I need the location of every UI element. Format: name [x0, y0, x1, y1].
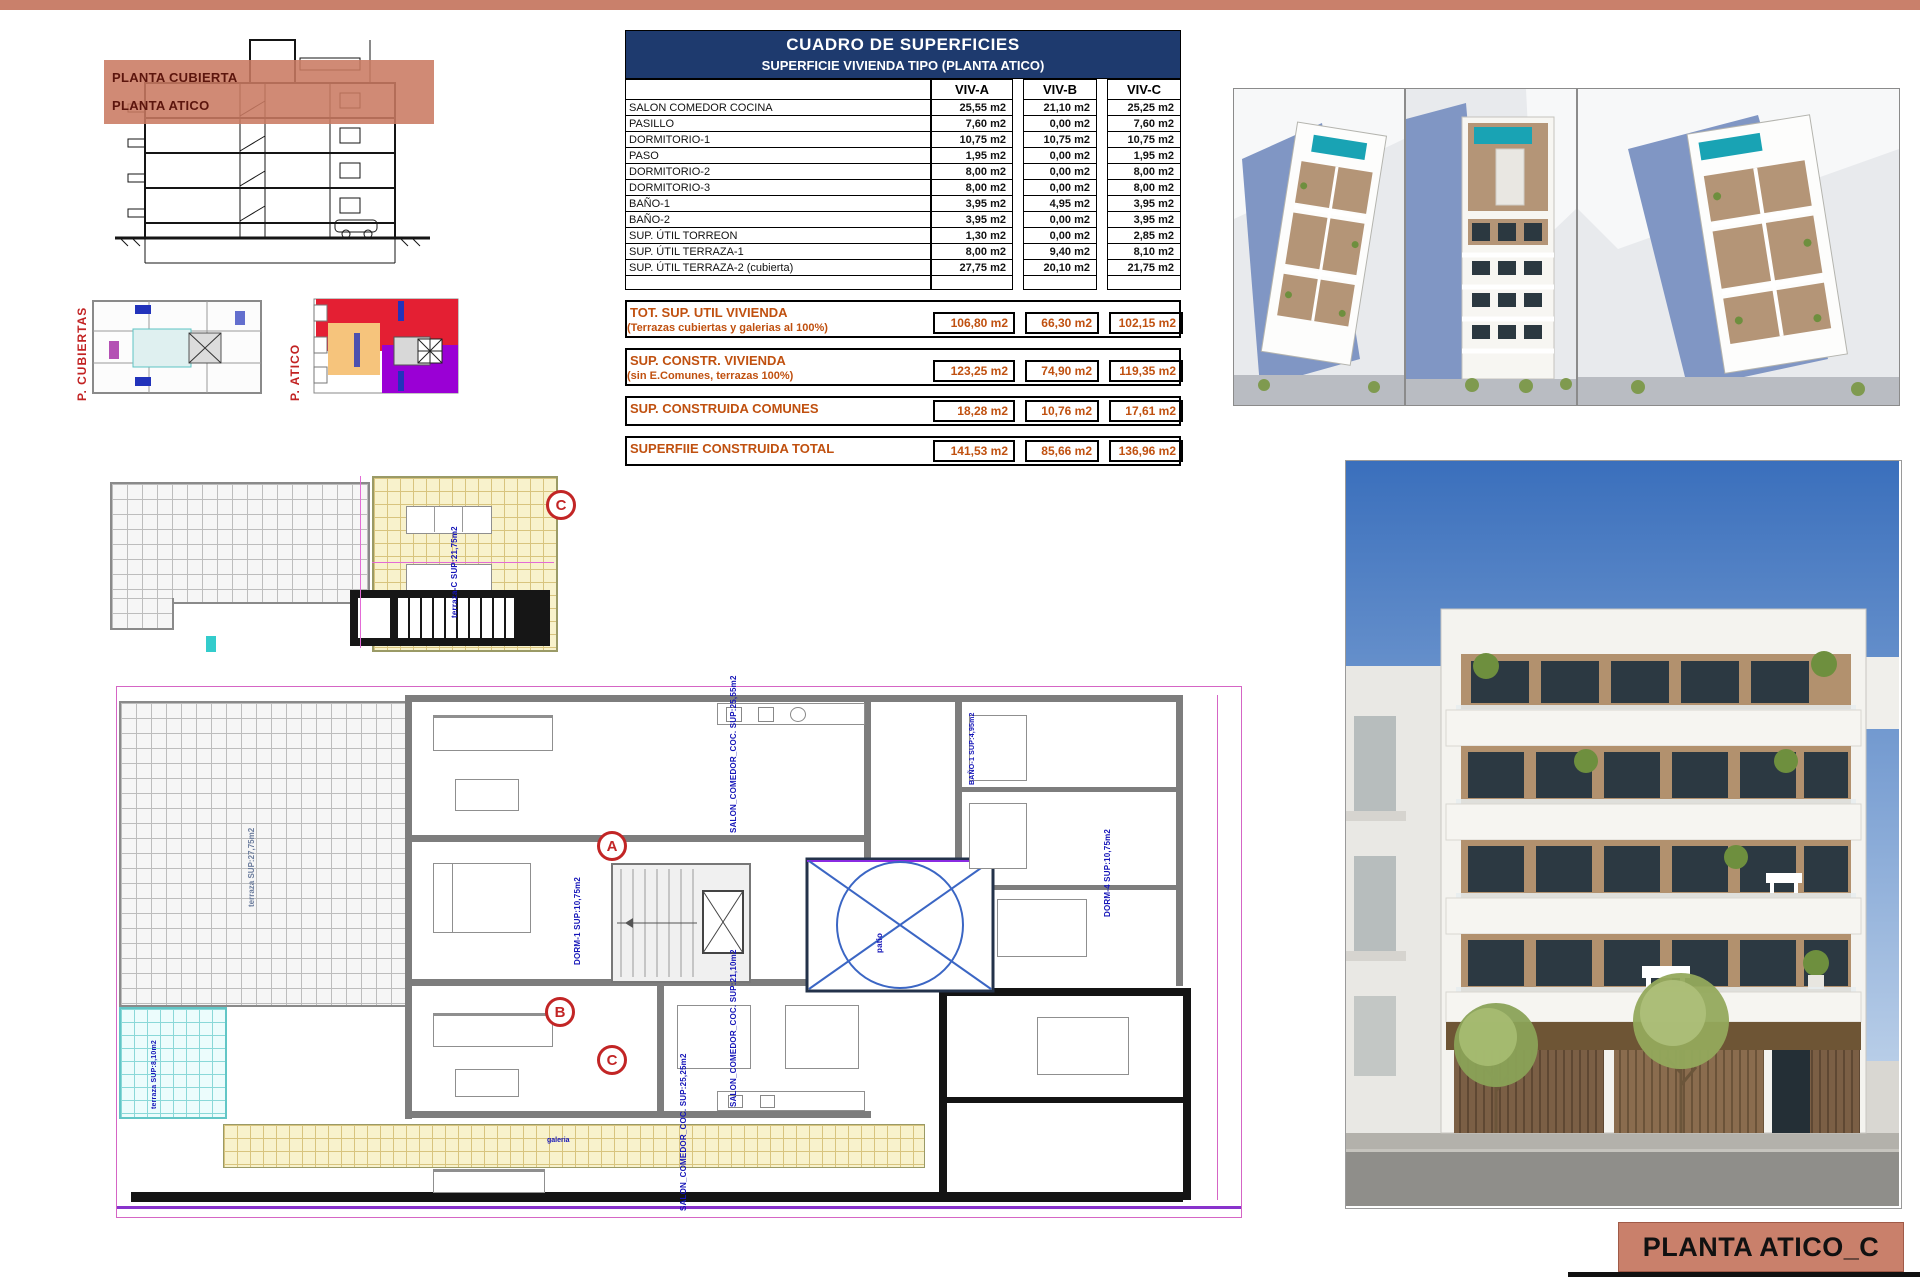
cell-viv-c: 1,95 m2: [1107, 148, 1181, 164]
col-gap: [1013, 244, 1023, 260]
table-spacer: [625, 426, 1181, 436]
col-gap: [1097, 79, 1107, 100]
furniture: [433, 863, 531, 933]
aerial-render-2: [1405, 88, 1577, 406]
col-gap: [1013, 132, 1023, 148]
planta-atico-label: PLANTA ATICO: [112, 98, 209, 113]
kitchen-stove: [758, 707, 774, 722]
furniture: [434, 506, 435, 532]
summary-viv-a: 18,28 m2: [933, 400, 1015, 422]
summary-note: (sin E.Comunes, terrazas 100%): [627, 370, 933, 382]
summary-label-cell: SUP. CONSTR. VIVIENDA (sin E.Comunes, te…: [627, 350, 933, 384]
plan-terrace-cyan: [119, 1007, 227, 1119]
summary-viv-b: 74,90 m2: [1025, 360, 1099, 382]
col-gap: [1097, 132, 1107, 148]
kitchen-basin: [790, 707, 806, 722]
furniture: [969, 715, 1027, 781]
facade-render-drawing: [1346, 461, 1899, 1206]
key-plan-cubiertas-label: P. CUBIERTAS: [75, 293, 89, 401]
table-row: SUP. ÚTIL TORREON 1,30 m2 0,00 m2 2,85 m…: [625, 228, 1181, 244]
col-gap: [1097, 260, 1107, 276]
cell-viv-b: [1023, 276, 1097, 290]
summary-viv-c: 119,35 m2: [1109, 360, 1183, 382]
key-plan-atico: P. ATICO: [288, 293, 478, 401]
building-section-panel: PLANTA CUBIERTA PLANTA ATICO: [100, 28, 445, 293]
furniture: [455, 1069, 519, 1097]
summary-viv-c: 102,15 m2: [1109, 312, 1183, 334]
key-plan-cubiertas-drawing: [89, 293, 267, 401]
col-gap: [1097, 244, 1107, 260]
table-title: CUADRO DE SUPERFICIES: [626, 35, 1180, 55]
col-gap: [1013, 212, 1023, 228]
room-label-bano1: BAÑO-1 SUP:4,95m2: [969, 705, 976, 785]
top-accent-strip: [0, 0, 1920, 10]
sheet-title-bar: PLANTA ATICO_C: [1618, 1222, 1904, 1272]
col-gap: [1013, 180, 1023, 196]
room-label-dorm4: DORM-4 SUP:10,75m2: [1103, 797, 1112, 917]
summary-note: (Terrazas cubiertas y galerias al 100%): [627, 322, 933, 334]
terrace-label-gray: terraza SUP:27,75m2: [247, 787, 256, 907]
black-wall: [131, 1192, 1183, 1202]
table-row: DORMITORIO-2 8,00 m2 0,00 m2 8,00 m2: [625, 164, 1181, 180]
row-label: BAÑO-1: [625, 196, 931, 212]
col-gap: [1099, 302, 1109, 336]
col-gap: [1015, 302, 1025, 336]
table-row: SUP. ÚTIL TERRAZA-2 (cubierta) 27,75 m2 …: [625, 260, 1181, 276]
room-label-salon-a: SALON_COMEDOR_COC. SUP:25,55m2: [729, 727, 738, 833]
room-label-salon-b: SALON_COMEDOR_COC. SUP:21,10m2: [729, 987, 738, 1107]
surface-table: CUADRO DE SUPERFICIES SUPERFICIE VIVIEND…: [625, 30, 1181, 466]
cell-viv-c: [1107, 276, 1181, 290]
cell-viv-a: 3,95 m2: [931, 196, 1013, 212]
table-spacer: [625, 290, 1181, 300]
row-label: PASO: [625, 148, 931, 164]
cell-viv-a: 1,95 m2: [931, 148, 1013, 164]
table-row: BAÑO-2 3,95 m2 0,00 m2 3,95 m2: [625, 212, 1181, 228]
unit-marker-c: C: [597, 1045, 627, 1075]
plan-galeria-strip: [223, 1124, 925, 1168]
kitchen-counter: [717, 703, 865, 725]
furniture: [785, 1005, 859, 1069]
cell-viv-c: 8,00 m2: [1107, 180, 1181, 196]
row-label: PASILLO: [625, 116, 931, 132]
col-gap: [1013, 116, 1023, 132]
room-label-galeria: galeria: [547, 1137, 570, 1144]
summary-viv-c: 17,61 m2: [1109, 400, 1183, 422]
table-row: BAÑO-1 3,95 m2 4,95 m2 3,95 m2: [625, 196, 1181, 212]
cell-viv-a: [931, 276, 1013, 290]
col-gap: [1097, 180, 1107, 196]
black-wall: [939, 988, 947, 1200]
furniture: [433, 715, 553, 751]
col-header-viv-b: VIV-B: [1023, 79, 1097, 100]
cell-viv-c: 8,10 m2: [1107, 244, 1181, 260]
roof-gray-terrace: [110, 482, 370, 604]
facade-render: [1345, 460, 1902, 1209]
kitchen-counter: [717, 1091, 865, 1111]
furniture: [1037, 1017, 1129, 1075]
aerial-renders-panel: [1233, 88, 1900, 406]
furniture: [433, 1013, 553, 1047]
col-gap: [1013, 100, 1023, 116]
roof-terrace-plan: terraza-C SUP:21,75m2 C: [110, 468, 580, 660]
roof-unit-marker-c: C: [546, 490, 576, 520]
cell-viv-b: 0,00 m2: [1023, 116, 1097, 132]
cell-viv-a: 25,55 m2: [931, 100, 1013, 116]
cell-viv-a: 8,00 m2: [931, 180, 1013, 196]
col-gap: [1097, 164, 1107, 180]
roof-stair-landing: [358, 598, 390, 638]
table-spacer: [625, 338, 1181, 348]
planta-cubierta-label: PLANTA CUBIERTA: [112, 70, 238, 85]
cell-viv-c: 2,85 m2: [1107, 228, 1181, 244]
dimension-line: [360, 476, 361, 648]
col-gap: [1097, 196, 1107, 212]
room-label-dorm1: DORM-1 SUP:10,75m2: [573, 855, 582, 965]
cyan-tick: [206, 636, 216, 652]
col-gap: [1097, 100, 1107, 116]
terrace-label-cyan: terraza SUP:8,10m2: [151, 1019, 158, 1109]
bed-pillow: [434, 864, 453, 932]
key-plan-atico-label: P. ATICO: [288, 293, 302, 401]
row-label: SUP. ÚTIL TORREON: [625, 228, 931, 244]
row-label: [625, 276, 931, 290]
key-plan-atico-drawing: [302, 293, 470, 401]
planta-highlight-band: PLANTA CUBIERTA PLANTA ATICO: [104, 60, 434, 124]
summary-label: TOT. SUP. UTIL VIVIENDA: [627, 302, 933, 322]
cell-viv-a: 8,00 m2: [931, 244, 1013, 260]
summary-viv-a: 106,80 m2: [933, 312, 1015, 334]
cell-viv-a: 27,75 m2: [931, 260, 1013, 276]
wall: [962, 787, 1176, 792]
row-label: DORMITORIO-1: [625, 132, 931, 148]
col-header-viv-c: VIV-C: [1107, 79, 1181, 100]
aerial-render-3: [1577, 88, 1900, 406]
patio-drawing: [805, 857, 995, 993]
col-gap: [1013, 228, 1023, 244]
row-label: SALON COMEDOR COCINA: [625, 100, 931, 116]
row-label: DORMITORIO-3: [625, 180, 931, 196]
table-spacer: [625, 386, 1181, 396]
col-gap: [1099, 350, 1109, 384]
summary-row-total-util: TOT. SUP. UTIL VIVIENDA (Terrazas cubier…: [625, 300, 1181, 338]
table-row: DORMITORIO-1 10,75 m2 10,75 m2 10,75 m2: [625, 132, 1181, 148]
cell-viv-a: 3,95 m2: [931, 212, 1013, 228]
cell-viv-a: 7,60 m2: [931, 116, 1013, 132]
col-gap: [1013, 260, 1023, 276]
unit-marker-a: A: [597, 831, 627, 861]
pink-boundary-line: [1217, 695, 1218, 1200]
summary-label: SUPERFIIE CONSTRUIDA TOTAL: [627, 438, 933, 464]
furniture: [406, 506, 492, 534]
summary-row-constr-vivienda: SUP. CONSTR. VIVIENDA (sin E.Comunes, te…: [625, 348, 1181, 386]
row-label: DORMITORIO-2: [625, 164, 931, 180]
col-gap: [1013, 276, 1023, 290]
summary-viv-b: 10,76 m2: [1025, 400, 1099, 422]
summary-viv-a: 123,25 m2: [933, 360, 1015, 382]
room-label-salon-c: SALON_COMEDOR_COC. SUP:25,25m2: [679, 1111, 688, 1211]
summary-row-comunes: SUP. CONSTRUIDA COMUNES 18,28 m2 10,76 m…: [625, 396, 1181, 426]
roof-gray-terrace-step: [110, 598, 174, 630]
cell-viv-b: 0,00 m2: [1023, 180, 1097, 196]
wall: [405, 835, 871, 842]
aerial-render-1: [1233, 88, 1405, 406]
plan-terrace-gray: [119, 701, 411, 1007]
plan-sheet: PLANTA CUBIERTA PLANTA ATICO P. CUBIERTA…: [0, 0, 1920, 1280]
table-column-header-row: VIV-A VIV-B VIV-C: [625, 79, 1181, 100]
cell-viv-b: 21,10 m2: [1023, 100, 1097, 116]
cell-viv-c: 8,00 m2: [1107, 164, 1181, 180]
summary-viv-c: 136,96 m2: [1109, 440, 1183, 462]
summary-viv-b: 66,30 m2: [1025, 312, 1099, 334]
row-label: BAÑO-2: [625, 212, 931, 228]
furniture: [462, 506, 463, 532]
table-row: SALON COMEDOR COCINA 25,55 m2 21,10 m2 2…: [625, 100, 1181, 116]
black-wall: [939, 1097, 1191, 1103]
cell-viv-b: 0,00 m2: [1023, 148, 1097, 164]
table-row: PASILLO 7,60 m2 0,00 m2 7,60 m2: [625, 116, 1181, 132]
wall: [1176, 695, 1183, 986]
furniture: [997, 899, 1087, 957]
col-gap: [1015, 398, 1025, 424]
cell-viv-b: 0,00 m2: [1023, 228, 1097, 244]
summary-viv-b: 85,66 m2: [1025, 440, 1099, 462]
black-wall: [1183, 988, 1191, 1200]
key-plan-cubiertas: P. CUBIERTAS: [75, 293, 275, 401]
cell-viv-b: 0,00 m2: [1023, 212, 1097, 228]
summary-row-construida-total: SUPERFIIE CONSTRUIDA TOTAL 141,53 m2 85,…: [625, 436, 1181, 466]
row-label: SUP. ÚTIL TERRAZA-1: [625, 244, 931, 260]
table-empty-row: [625, 276, 1181, 290]
col-header-blank: [625, 79, 931, 100]
cell-viv-b: 0,00 m2: [1023, 164, 1097, 180]
cell-viv-a: 1,30 m2: [931, 228, 1013, 244]
cell-viv-c: 25,25 m2: [1107, 100, 1181, 116]
furniture: [433, 1169, 545, 1193]
cell-viv-a: 10,75 m2: [931, 132, 1013, 148]
col-gap: [1097, 212, 1107, 228]
col-gap: [1013, 164, 1023, 180]
summary-viv-a: 141,53 m2: [933, 440, 1015, 462]
cell-viv-c: 10,75 m2: [1107, 132, 1181, 148]
cell-viv-a: 8,00 m2: [931, 164, 1013, 180]
summary-label-cell: TOT. SUP. UTIL VIVIENDA (Terrazas cubier…: [627, 302, 933, 336]
col-gap: [1099, 438, 1109, 464]
furniture: [455, 779, 519, 811]
col-gap: [1013, 148, 1023, 164]
wall: [405, 1111, 871, 1118]
table-row: PASO 1,95 m2 0,00 m2 1,95 m2: [625, 148, 1181, 164]
cell-viv-c: 3,95 m2: [1107, 196, 1181, 212]
furniture: [969, 803, 1027, 869]
row-label: SUP. ÚTIL TERRAZA-2 (cubierta): [625, 260, 931, 276]
surface-table-header: CUADRO DE SUPERFICIES SUPERFICIE VIVIEND…: [625, 30, 1181, 79]
cell-viv-b: 10,75 m2: [1023, 132, 1097, 148]
furniture: [677, 1005, 751, 1069]
main-floor-plan: A B C SALON_COMEDOR_COC. SUP:25,55m2 DOR…: [116, 686, 1242, 1218]
aerial-render-2-drawing: [1406, 89, 1576, 405]
room-label-patio: patio: [875, 893, 884, 953]
cell-viv-c: 7,60 m2: [1107, 116, 1181, 132]
aerial-render-1-drawing: [1234, 89, 1404, 405]
col-gap: [1013, 196, 1023, 212]
furniture: [406, 564, 492, 592]
col-gap: [1099, 398, 1109, 424]
kitchen-stove: [760, 1095, 775, 1108]
aerial-render-3-drawing: [1578, 89, 1899, 405]
wall: [405, 695, 412, 1119]
wall: [405, 695, 1183, 702]
cell-viv-c: 3,95 m2: [1107, 212, 1181, 228]
col-gap: [1015, 438, 1025, 464]
col-gap: [1097, 148, 1107, 164]
col-gap: [1097, 116, 1107, 132]
cell-viv-b: 9,40 m2: [1023, 244, 1097, 260]
sheet-title-underline: [1568, 1272, 1920, 1277]
table-row: SUP. ÚTIL TERRAZA-1 8,00 m2 9,40 m2 8,10…: [625, 244, 1181, 260]
roof-terraza-c-label: terraza-C SUP:21,75m2: [450, 508, 459, 618]
unit-marker-b: B: [545, 997, 575, 1027]
table-subtitle: SUPERFICIE VIVIENDA TIPO (PLANTA ATICO): [626, 58, 1180, 73]
col-gap: [1097, 228, 1107, 244]
summary-label: SUP. CONSTRUIDA COMUNES: [627, 398, 933, 424]
wall: [657, 986, 664, 1118]
cell-viv-c: 21,75 m2: [1107, 260, 1181, 276]
col-gap: [1013, 79, 1023, 100]
summary-label: SUP. CONSTR. VIVIENDA: [627, 350, 933, 370]
col-gap: [1097, 276, 1107, 290]
cell-viv-b: 4,95 m2: [1023, 196, 1097, 212]
table-row: DORMITORIO-3 8,00 m2 0,00 m2 8,00 m2: [625, 180, 1181, 196]
col-header-viv-a: VIV-A: [931, 79, 1013, 100]
dimension-line: [372, 562, 554, 563]
col-gap: [1015, 350, 1025, 384]
cell-viv-b: 20,10 m2: [1023, 260, 1097, 276]
